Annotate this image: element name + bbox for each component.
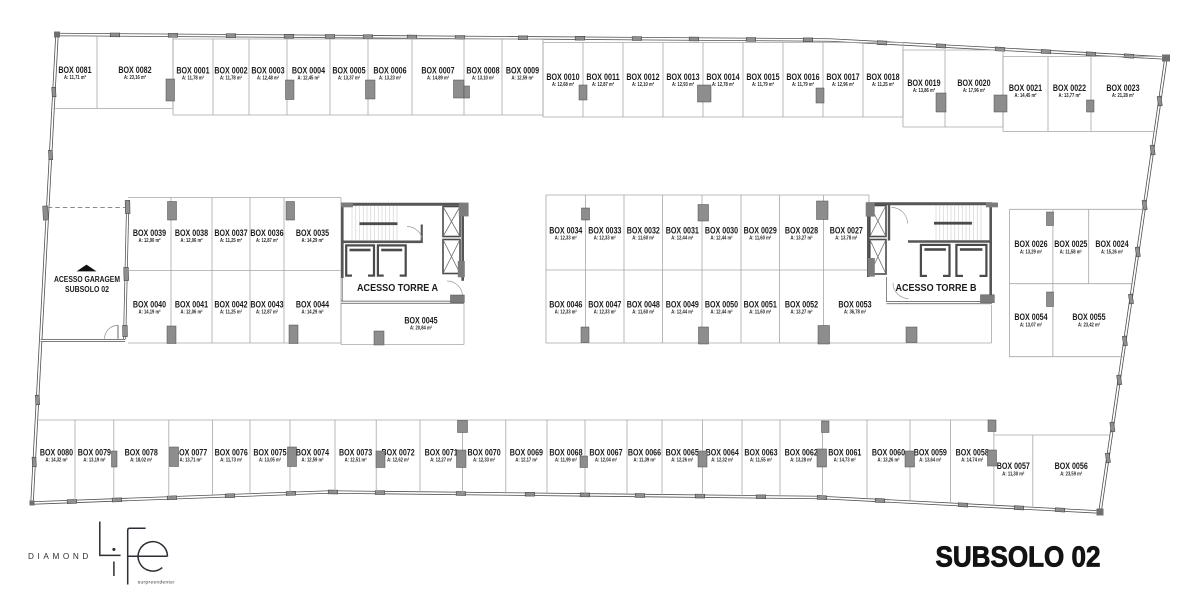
svg-text:A: 12,33 m²: A: 12,33 m² (473, 457, 495, 464)
svg-text:A: 14,45 m²: A: 14,45 m² (1015, 92, 1037, 99)
svg-text:A: 12,44 m²: A: 12,44 m² (711, 235, 733, 242)
svg-text:BOX 0017: BOX 0017 (826, 72, 859, 82)
svg-text:A: 12,17 m²: A: 12,17 m² (515, 457, 537, 464)
svg-text:BOX 0040: BOX 0040 (133, 299, 166, 309)
svg-text:A: 23,16 m²: A: 23,16 m² (124, 74, 146, 81)
svg-text:A: 13,27 m²: A: 13,27 m² (791, 235, 813, 242)
svg-text:A: 13,05 m²: A: 13,05 m² (259, 457, 281, 464)
svg-text:A: 23,59 m²: A: 23,59 m² (1060, 470, 1082, 477)
svg-text:A: 11,73 m²: A: 11,73 m² (220, 457, 242, 464)
svg-text:BOX 0024: BOX 0024 (1095, 239, 1128, 249)
svg-text:A: 13,23 m²: A: 13,23 m² (379, 74, 401, 81)
svg-text:A: 17,96 m²: A: 17,96 m² (963, 87, 985, 94)
svg-text:BOX 0001: BOX 0001 (176, 65, 209, 75)
svg-text:BOX 0025: BOX 0025 (1054, 239, 1087, 249)
svg-text:BOX 0018: BOX 0018 (866, 72, 899, 82)
svg-text:A: 12,93 m²: A: 12,93 m² (672, 81, 694, 88)
svg-text:A: 11,25 m²: A: 11,25 m² (220, 237, 242, 244)
svg-text:A: 12,45 m²: A: 12,45 m² (298, 74, 320, 81)
svg-text:A: 11,60 m²: A: 11,60 m² (632, 308, 654, 315)
svg-text:BOX 0060: BOX 0060 (872, 448, 905, 458)
svg-text:BOX 0028: BOX 0028 (785, 226, 818, 236)
svg-text:A: 12,87 m²: A: 12,87 m² (256, 308, 278, 315)
svg-text:A: 12,06 m²: A: 12,06 m² (181, 237, 203, 244)
svg-text:BOX 0002: BOX 0002 (214, 65, 247, 75)
svg-text:BOX 0015: BOX 0015 (746, 72, 779, 82)
svg-text:surpreendenteı: surpreendenteı (138, 580, 175, 585)
svg-text:BOX 0079: BOX 0079 (78, 448, 111, 458)
svg-text:A: 11,60 m²: A: 11,60 m² (749, 308, 771, 315)
svg-text:BOX 0029: BOX 0029 (744, 226, 777, 236)
svg-text:A: 12,33 m²: A: 12,33 m² (594, 308, 616, 315)
svg-text:A: 12,68 m²: A: 12,68 m² (552, 81, 574, 88)
svg-text:A: 12,48 m²: A: 12,48 m² (257, 74, 279, 81)
svg-text:SUBSOLO 02: SUBSOLO 02 (65, 285, 109, 294)
svg-text:DIAMOND: DIAMOND (28, 552, 92, 561)
svg-text:BOX 0011: BOX 0011 (586, 72, 619, 82)
svg-text:BOX 0047: BOX 0047 (588, 299, 621, 309)
svg-text:A: 12,87 m²: A: 12,87 m² (256, 237, 278, 244)
svg-text:A: 13,28 m²: A: 13,28 m² (790, 457, 812, 464)
svg-text:A: 12,44 m²: A: 12,44 m² (671, 235, 693, 242)
svg-text:BOX 0036: BOX 0036 (250, 228, 283, 238)
svg-text:A: 18,02 m²: A: 18,02 m² (130, 457, 152, 464)
svg-text:BOX 0032: BOX 0032 (627, 226, 660, 236)
svg-text:BOX 0066: BOX 0066 (628, 448, 661, 458)
svg-text:BOX 0056: BOX 0056 (1055, 461, 1088, 471)
svg-text:A: 12,04 m²: A: 12,04 m² (595, 457, 617, 464)
svg-text:BOX 0012: BOX 0012 (626, 72, 659, 82)
svg-text:A: 13,07 m²: A: 13,07 m² (1020, 321, 1042, 328)
svg-text:BOX 0074: BOX 0074 (296, 448, 329, 458)
svg-text:BOX 0075: BOX 0075 (253, 448, 286, 458)
svg-text:A: 13,77 m²: A: 13,77 m² (1059, 92, 1081, 99)
svg-text:BOX 0053: BOX 0053 (838, 299, 871, 309)
svg-text:A: 14,19 m²: A: 14,19 m² (139, 308, 161, 315)
svg-text:A: 20,84 m²: A: 20,84 m² (410, 325, 432, 332)
svg-text:BOX 0014: BOX 0014 (706, 72, 739, 82)
svg-text:BOX 0041: BOX 0041 (175, 299, 208, 309)
svg-text:BOX 0076: BOX 0076 (215, 448, 248, 458)
svg-text:A: 11,79 m²: A: 11,79 m² (792, 81, 814, 88)
svg-text:A: 12,26 m²: A: 12,26 m² (671, 457, 693, 464)
svg-text:ACESSO TORRE B: ACESSO TORRE B (896, 282, 977, 294)
svg-text:A: 14,32 m²: A: 14,32 m² (46, 457, 68, 464)
svg-text:BOX 0042: BOX 0042 (214, 299, 247, 309)
svg-text:BOX 0010: BOX 0010 (546, 72, 579, 82)
svg-text:BOX 0003: BOX 0003 (251, 65, 284, 75)
svg-text:BOX 0077: BOX 0077 (174, 448, 207, 458)
svg-text:BOX 0009: BOX 0009 (506, 65, 539, 75)
svg-text:BOX 0023: BOX 0023 (1106, 83, 1139, 93)
svg-text:A: 12,06 m²: A: 12,06 m² (181, 308, 203, 315)
svg-text:BOX 0022: BOX 0022 (1053, 83, 1086, 93)
svg-text:A: 11,30 m²: A: 11,30 m² (1002, 470, 1024, 477)
svg-text:BOX 0020: BOX 0020 (957, 78, 990, 88)
svg-text:BOX 0026: BOX 0026 (1014, 239, 1047, 249)
svg-text:A: 14,74 m²: A: 14,74 m² (961, 457, 983, 464)
svg-text:ACESSO GARAGEM: ACESSO GARAGEM (54, 275, 120, 284)
svg-text:BOX 0048: BOX 0048 (627, 299, 660, 309)
svg-text:A: 12,96 m²: A: 12,96 m² (832, 81, 854, 88)
svg-text:BOX 0030: BOX 0030 (705, 226, 738, 236)
svg-text:BOX 0013: BOX 0013 (666, 72, 699, 82)
svg-text:A: 36,78 m²: A: 36,78 m² (844, 308, 866, 315)
svg-text:A: 12,59 m²: A: 12,59 m² (512, 74, 534, 81)
svg-text:BOX 0065: BOX 0065 (666, 448, 699, 458)
svg-text:A: 11,39 m²: A: 11,39 m² (634, 457, 656, 464)
svg-text:A: 13,27 m²: A: 13,27 m² (791, 308, 813, 315)
svg-text:BOX 0071: BOX 0071 (425, 448, 458, 458)
svg-text:A: 11,78 m²: A: 11,78 m² (220, 74, 242, 81)
svg-text:BOX 0069: BOX 0069 (510, 448, 543, 458)
svg-text:A: 12,44 m²: A: 12,44 m² (671, 308, 693, 315)
svg-text:A: 13,86 m²: A: 13,86 m² (913, 87, 935, 94)
svg-text:BOX 0080: BOX 0080 (40, 448, 73, 458)
svg-text:BOX 0052: BOX 0052 (785, 299, 818, 309)
svg-text:BOX 0034: BOX 0034 (549, 226, 582, 236)
svg-text:BOX 0051: BOX 0051 (744, 299, 777, 309)
svg-text:BOX 0005: BOX 0005 (332, 65, 365, 75)
svg-text:A: 12,44 m²: A: 12,44 m² (711, 308, 733, 315)
svg-text:BOX 0067: BOX 0067 (589, 448, 622, 458)
svg-text:A: 12,27 m²: A: 12,27 m² (430, 457, 452, 464)
svg-text:A: 13,26 m²: A: 13,26 m² (878, 457, 900, 464)
svg-text:BOX 0059: BOX 0059 (914, 448, 947, 458)
svg-text:BOX 0039: BOX 0039 (133, 228, 166, 238)
svg-text:BOX 0037: BOX 0037 (214, 228, 247, 238)
svg-text:SUBSOLO 02: SUBSOLO 02 (936, 542, 1101, 574)
svg-text:A: 11,60 m²: A: 11,60 m² (632, 235, 654, 242)
svg-text:BOX 0046: BOX 0046 (549, 299, 582, 309)
svg-text:BOX 0008: BOX 0008 (466, 65, 499, 75)
svg-text:A: 13,29 m²: A: 13,29 m² (1020, 249, 1042, 256)
svg-text:A: 13,37 m²: A: 13,37 m² (338, 74, 360, 81)
svg-text:BOX 0062: BOX 0062 (785, 448, 818, 458)
svg-text:A: 11,55 m²: A: 11,55 m² (750, 457, 772, 464)
svg-text:BOX 0073: BOX 0073 (339, 448, 372, 458)
svg-text:BOX 0058: BOX 0058 (956, 448, 989, 458)
svg-text:A: 14,73 m²: A: 14,73 m² (834, 457, 856, 464)
svg-text:A: 14,89 m²: A: 14,89 m² (427, 74, 449, 81)
svg-text:BOX 0061: BOX 0061 (828, 448, 861, 458)
svg-text:A: 14,29 m²: A: 14,29 m² (302, 308, 324, 315)
svg-text:BOX 0070: BOX 0070 (468, 448, 501, 458)
svg-text:BOX 0019: BOX 0019 (907, 78, 940, 88)
svg-text:BOX 0016: BOX 0016 (786, 72, 819, 82)
svg-text:BOX 0044: BOX 0044 (296, 299, 329, 309)
svg-text:A: 14,29 m²: A: 14,29 m² (302, 237, 324, 244)
svg-text:A: 12,90 m²: A: 12,90 m² (139, 237, 161, 244)
svg-text:A: 13,64 m²: A: 13,64 m² (919, 457, 941, 464)
svg-text:A: 11,25 m²: A: 11,25 m² (872, 81, 894, 88)
svg-text:BOX 0057: BOX 0057 (997, 461, 1030, 471)
svg-text:BOX 0007: BOX 0007 (421, 65, 454, 75)
svg-text:A: 12,78 m²: A: 12,78 m² (712, 81, 734, 88)
svg-text:A: 11,58 m²: A: 11,58 m² (1060, 249, 1082, 256)
svg-text:BOX 0068: BOX 0068 (549, 448, 582, 458)
svg-text:A: 12,51 m²: A: 12,51 m² (345, 457, 367, 464)
svg-text:A: 12,10 m²: A: 12,10 m² (632, 81, 654, 88)
svg-text:A: 12,33 m²: A: 12,33 m² (555, 235, 577, 242)
svg-text:BOX 0031: BOX 0031 (666, 226, 699, 236)
svg-text:A: 13,19 m²: A: 13,19 m² (83, 457, 105, 464)
svg-text:A: 15,26 m²: A: 15,26 m² (1101, 249, 1123, 256)
svg-text:A: 11,99 m²: A: 11,99 m² (555, 457, 577, 464)
svg-text:A: 13,71 m²: A: 13,71 m² (180, 457, 202, 464)
svg-text:A: 11,25 m²: A: 11,25 m² (220, 308, 242, 315)
svg-text:BOX 0082: BOX 0082 (118, 65, 151, 75)
svg-text:A: 13,78 m²: A: 13,78 m² (835, 235, 857, 242)
svg-text:BOX 0035: BOX 0035 (296, 228, 329, 238)
svg-text:BOX 0043: BOX 0043 (250, 299, 283, 309)
svg-text:A: 12,59 m²: A: 12,59 m² (302, 457, 324, 464)
svg-text:A: 11,71 m²: A: 11,71 m² (64, 74, 86, 81)
svg-text:BOX 0054: BOX 0054 (1014, 312, 1047, 322)
svg-text:BOX 0004: BOX 0004 (292, 65, 325, 75)
svg-text:A: 11,78 m²: A: 11,78 m² (182, 74, 204, 81)
svg-text:BOX 0033: BOX 0033 (588, 226, 621, 236)
svg-text:A: 12,33 m²: A: 12,33 m² (555, 308, 577, 315)
svg-text:BOX 0021: BOX 0021 (1009, 83, 1042, 93)
svg-text:BOX 0063: BOX 0063 (744, 448, 777, 458)
svg-text:BOX 0081: BOX 0081 (58, 65, 91, 75)
svg-text:A: 21,28 m²: A: 21,28 m² (1112, 92, 1134, 99)
svg-text:BOX 0078: BOX 0078 (125, 448, 158, 458)
svg-text:BOX 0049: BOX 0049 (666, 299, 699, 309)
svg-text:A: 13,10 m²: A: 13,10 m² (472, 74, 494, 81)
svg-text:A: 12,32 m²: A: 12,32 m² (711, 457, 733, 464)
svg-text:BOX 0038: BOX 0038 (175, 228, 208, 238)
svg-text:ACESSO TORRE A: ACESSO TORRE A (357, 282, 438, 294)
svg-text:A: 12,33 m²: A: 12,33 m² (594, 235, 616, 242)
svg-text:A: 11,60 m²: A: 11,60 m² (749, 235, 771, 242)
svg-text:BOX 0055: BOX 0055 (1072, 312, 1105, 322)
svg-text:BOX 0050: BOX 0050 (705, 299, 738, 309)
svg-text:A: 12,87 m²: A: 12,87 m² (592, 81, 614, 88)
svg-text:A: 23,42 m²: A: 23,42 m² (1078, 321, 1100, 328)
svg-text:BOX 0027: BOX 0027 (830, 226, 863, 236)
svg-text:A: 12,62 m²: A: 12,62 m² (387, 457, 409, 464)
svg-text:BOX 0072: BOX 0072 (382, 448, 415, 458)
svg-text:BOX 0006: BOX 0006 (373, 65, 406, 75)
svg-text:BOX 0045: BOX 0045 (404, 316, 437, 326)
svg-text:BOX 0064: BOX 0064 (706, 448, 739, 458)
svg-text:A: 11,79 m²: A: 11,79 m² (752, 81, 774, 88)
